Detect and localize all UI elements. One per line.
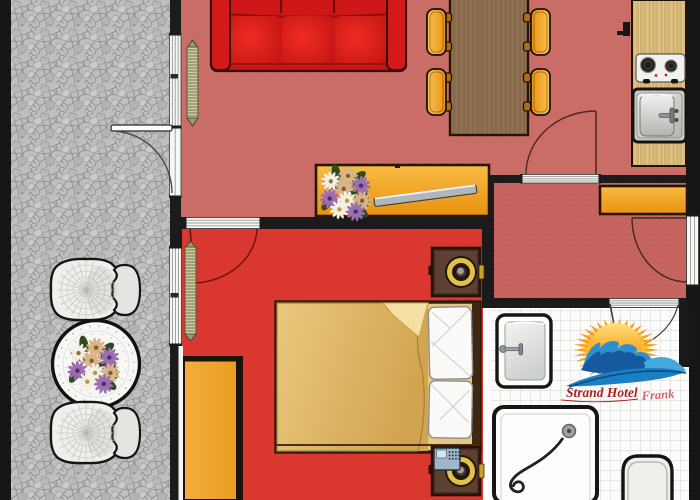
svg-text:Strand Hotel: Strand Hotel [566,385,638,400]
svg-text:Frank: Frank [640,387,675,403]
